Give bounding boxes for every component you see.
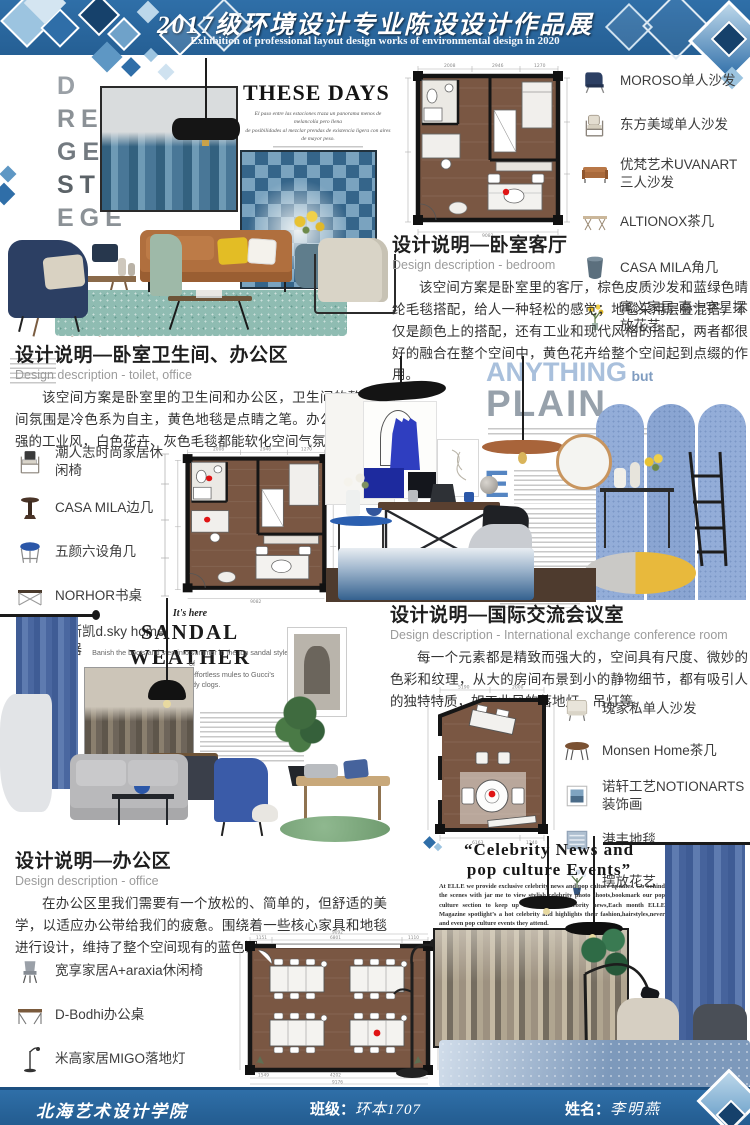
svg-text:4202: 4202 bbox=[330, 1073, 341, 1079]
svg-text:9176: 9176 bbox=[332, 1079, 343, 1085]
yellow-flowers-icon bbox=[640, 452, 666, 474]
furniture-item: 米高家居MIGO落地灯 bbox=[15, 1044, 227, 1074]
section-title: 设计说明—卧室卫生间、办公区 bbox=[15, 340, 389, 367]
headline-word: but bbox=[631, 368, 653, 384]
furniture-item-label: 宽享家居A+araxia休闲椅 bbox=[55, 962, 203, 980]
svg-text:2008: 2008 bbox=[444, 63, 456, 69]
ladder-icon bbox=[676, 448, 732, 570]
blue-pillow bbox=[343, 759, 369, 779]
blue-hand-shape bbox=[390, 418, 420, 470]
black-pendant-lamp-icon bbox=[519, 896, 577, 909]
white-vase-flowers-icon bbox=[346, 490, 360, 516]
dimension-ruler bbox=[158, 450, 172, 600]
industrial-desk bbox=[378, 502, 500, 510]
furniture-item: Monsen Home茶几 bbox=[562, 736, 748, 766]
footer-class: 班级：环本1707 bbox=[310, 1098, 421, 1119]
bench-leg bbox=[378, 786, 381, 820]
framed-art-icon bbox=[562, 781, 592, 811]
furniture-item-label: 瑰家私单人沙发 bbox=[602, 700, 697, 718]
pendant-lamp-detail bbox=[202, 140, 209, 146]
two-tone-round-rug bbox=[584, 552, 696, 594]
svg-text:1151: 1151 bbox=[256, 935, 267, 941]
office-desk-icon bbox=[15, 1000, 45, 1030]
deck-line: de posibilidades al mezclar prendas de e… bbox=[243, 127, 393, 144]
bedroom-livingroom-moodboard: D REN GE STR EGE R THESE DAYS El paso en… bbox=[0, 58, 395, 340]
deck-line: Banish the boots and step into summer in… bbox=[92, 648, 292, 670]
furniture-item: 诺轩工艺NOTIONARTS装饰画 bbox=[562, 778, 748, 813]
pendant-bulb bbox=[543, 908, 550, 915]
bench-cushion bbox=[304, 764, 338, 778]
coffee-table-dark bbox=[112, 794, 174, 799]
white-drape bbox=[0, 694, 52, 812]
sandal-weather-moodboard: It's here SANDAL WEATHER Banish the boot… bbox=[0, 598, 392, 846]
potted-plant-icon bbox=[272, 690, 328, 772]
svg-text:1549: 1549 bbox=[258, 1073, 269, 1079]
white-leaf-pillow bbox=[247, 238, 277, 265]
laptop-icon bbox=[430, 484, 456, 502]
furniture-item: 瑰家私单人沙发 bbox=[562, 694, 748, 724]
table-leg bbox=[166, 799, 168, 825]
footer-name-label: 姓名： bbox=[565, 1102, 610, 1118]
vase-group-icon bbox=[128, 263, 135, 276]
section-subtitle: Design description - bedroom bbox=[392, 258, 748, 272]
svg-text:2946: 2946 bbox=[492, 63, 504, 69]
floor-plan-toilet-office: 2008 2946 1270 9082 bbox=[172, 446, 340, 604]
furniture-item-label: 东方美域单人沙发 bbox=[620, 116, 728, 134]
white-stool bbox=[252, 804, 278, 822]
blue-figure-artwork bbox=[364, 402, 436, 498]
section-title: 设计说明—国际交流会议室 bbox=[390, 600, 748, 627]
round-table-icon bbox=[562, 736, 592, 766]
plan-marker-red-dot bbox=[206, 475, 212, 481]
office-desk-moodboard: ANYTHING but PLAIN E bbox=[338, 356, 750, 602]
sandal-kicker: It's here bbox=[90, 608, 290, 619]
footer-banner: 北海艺术设计学院 班级：环本1707 姓名：李明燕 bbox=[0, 1090, 750, 1125]
white-flowers-icon bbox=[338, 472, 372, 492]
footer-name: 姓名：李明燕 bbox=[565, 1098, 661, 1119]
celebrity-moodboard: “Celebrity News and pop culture Events” … bbox=[425, 836, 750, 1090]
furniture-item: 优梵艺术UVANART三人沙发 bbox=[580, 156, 748, 191]
section-title: 设计说明—卧室客厅 bbox=[392, 230, 748, 257]
pendant-cord bbox=[205, 58, 207, 120]
plan-marker-red-dot bbox=[204, 517, 210, 523]
these-days-deck: El paso entre las estaciones traza un pa… bbox=[243, 110, 393, 150]
furniture-item: CASA MILA边几 bbox=[15, 493, 167, 523]
svg-text:1270: 1270 bbox=[301, 447, 313, 452]
yellow-pillow bbox=[217, 237, 249, 265]
green-round-rug bbox=[280, 816, 390, 842]
svg-text:6801: 6801 bbox=[330, 935, 341, 941]
floor-lamp-icon bbox=[15, 1044, 45, 1074]
poster: 2017级环境设计专业陈设设计作品展 Exhibition of profess… bbox=[0, 0, 750, 1125]
gray-chair-icon bbox=[15, 956, 45, 986]
mug-icon bbox=[408, 490, 418, 502]
furniture-item: 潮人志时尚家居休闲椅 bbox=[15, 444, 167, 479]
right-console-table bbox=[600, 488, 674, 492]
green-throw-blanket bbox=[150, 234, 182, 296]
round-mirror-icon bbox=[556, 434, 612, 490]
wingback-armchair-icon bbox=[580, 66, 610, 96]
black-hat-pendant-icon bbox=[357, 379, 446, 403]
furniture-item: 东方美域单人沙发 bbox=[580, 110, 748, 140]
table-leg bbox=[118, 799, 120, 825]
bench-leg bbox=[304, 786, 307, 820]
pedestal-table-icon bbox=[15, 493, 45, 523]
furniture-item-label: ALTIONOX茶几 bbox=[620, 213, 714, 231]
section-title: 设计说明—办公区 bbox=[15, 846, 387, 873]
console-leg bbox=[604, 492, 606, 548]
sofa-leg bbox=[148, 282, 150, 292]
furniture-item-label: Monsen Home茶几 bbox=[602, 742, 717, 760]
sofa-leg bbox=[284, 282, 286, 292]
pendant-lamp-icon bbox=[172, 118, 240, 140]
abstract-brush-painting bbox=[100, 86, 238, 212]
lounge-chair-icon bbox=[15, 447, 45, 477]
svg-text:2946: 2946 bbox=[260, 447, 272, 452]
yellow-flowers-icon bbox=[288, 208, 328, 242]
furniture-item: 宽享家居A+araxia休闲椅 bbox=[15, 956, 227, 986]
headline-line: pop culture Events” bbox=[431, 860, 667, 880]
furniture-item-label: D-Bodhi办公桌 bbox=[55, 1006, 144, 1024]
blue-gradient-rug bbox=[338, 548, 534, 600]
furniture-item-label: MOROSO单人沙发 bbox=[620, 72, 736, 90]
furniture-item-label: 优梵艺术UVANART三人沙发 bbox=[620, 156, 748, 191]
footer-class-value: 环本1707 bbox=[355, 1102, 421, 1118]
section-subtitle: Design description - International excha… bbox=[390, 628, 748, 642]
vase-group-icon bbox=[118, 258, 126, 276]
sofa-cushion bbox=[128, 760, 178, 786]
beige-pillow bbox=[42, 254, 85, 290]
floor-plan-bedroom: 2008 2946 1270 9082 bbox=[402, 62, 574, 238]
pendant-cord bbox=[166, 598, 168, 682]
deck-line: El paso entre las estaciones traza un pa… bbox=[243, 110, 393, 127]
svg-text:1270: 1270 bbox=[534, 63, 546, 69]
chair-leg bbox=[259, 822, 263, 836]
console-leg bbox=[668, 492, 670, 548]
plan-marker-red-dot bbox=[503, 189, 509, 195]
blue-stool-icon bbox=[15, 537, 45, 567]
fabric-armchair-icon bbox=[562, 694, 592, 724]
celebrity-title: “Celebrity News and pop culture Events” bbox=[431, 840, 667, 880]
svg-text:2008: 2008 bbox=[213, 447, 225, 452]
pendant-bulb bbox=[518, 452, 527, 464]
svg-text:2000: 2000 bbox=[512, 685, 524, 691]
svg-text:5190: 5190 bbox=[458, 685, 470, 691]
footer-name-value: 李明燕 bbox=[610, 1102, 661, 1118]
furniture-item-label: 潮人志时尚家居休闲椅 bbox=[55, 444, 167, 479]
footer-school: 北海艺术设计学院 bbox=[36, 1097, 188, 1122]
furniture-item-label: 诺轩工艺NOTIONARTS装饰画 bbox=[602, 778, 748, 813]
plan-marker-red-dot bbox=[489, 791, 496, 798]
furniture-item: D-Bodhi办公桌 bbox=[15, 1000, 227, 1030]
chair-frame bbox=[314, 254, 396, 314]
sofa-cushion bbox=[76, 760, 126, 786]
wood-armchair-icon bbox=[580, 110, 610, 140]
blue-mug-icon bbox=[464, 492, 474, 502]
section-subtitle: Design description - toilet, office bbox=[15, 368, 389, 382]
footer-class-label: 班级： bbox=[310, 1102, 355, 1118]
section-subtitle: Design description - office bbox=[15, 874, 387, 888]
pendant-cord bbox=[522, 356, 524, 442]
table-lamp-icon bbox=[92, 244, 118, 262]
svg-text:9092: 9092 bbox=[332, 930, 343, 935]
armchair-leg bbox=[18, 316, 24, 332]
books-on-table bbox=[196, 290, 222, 296]
blue-patterned-rug bbox=[439, 1040, 750, 1088]
furniture-item-label: 五颜六设角几 bbox=[55, 543, 136, 561]
chair-leg bbox=[221, 822, 225, 836]
furniture-item: 五颜六设角几 bbox=[15, 537, 167, 567]
leather-sofa-icon bbox=[580, 159, 610, 189]
furniture-item-label: 米高家居MIGO落地灯 bbox=[55, 1050, 186, 1068]
globe-lamp-icon bbox=[480, 476, 498, 494]
furniture-item-label: CASA MILA边几 bbox=[55, 499, 153, 517]
furniture-item: MOROSO单人沙发 bbox=[580, 66, 748, 96]
these-days-title: THESE DAYS bbox=[243, 80, 393, 106]
portrait-figure bbox=[304, 646, 330, 694]
pendant-bulb bbox=[163, 700, 171, 708]
white-vase-icon bbox=[614, 468, 626, 488]
white-vase-icon bbox=[630, 462, 640, 488]
floor-plan-conference: 5190 2000 6163 1240 bbox=[420, 684, 562, 846]
